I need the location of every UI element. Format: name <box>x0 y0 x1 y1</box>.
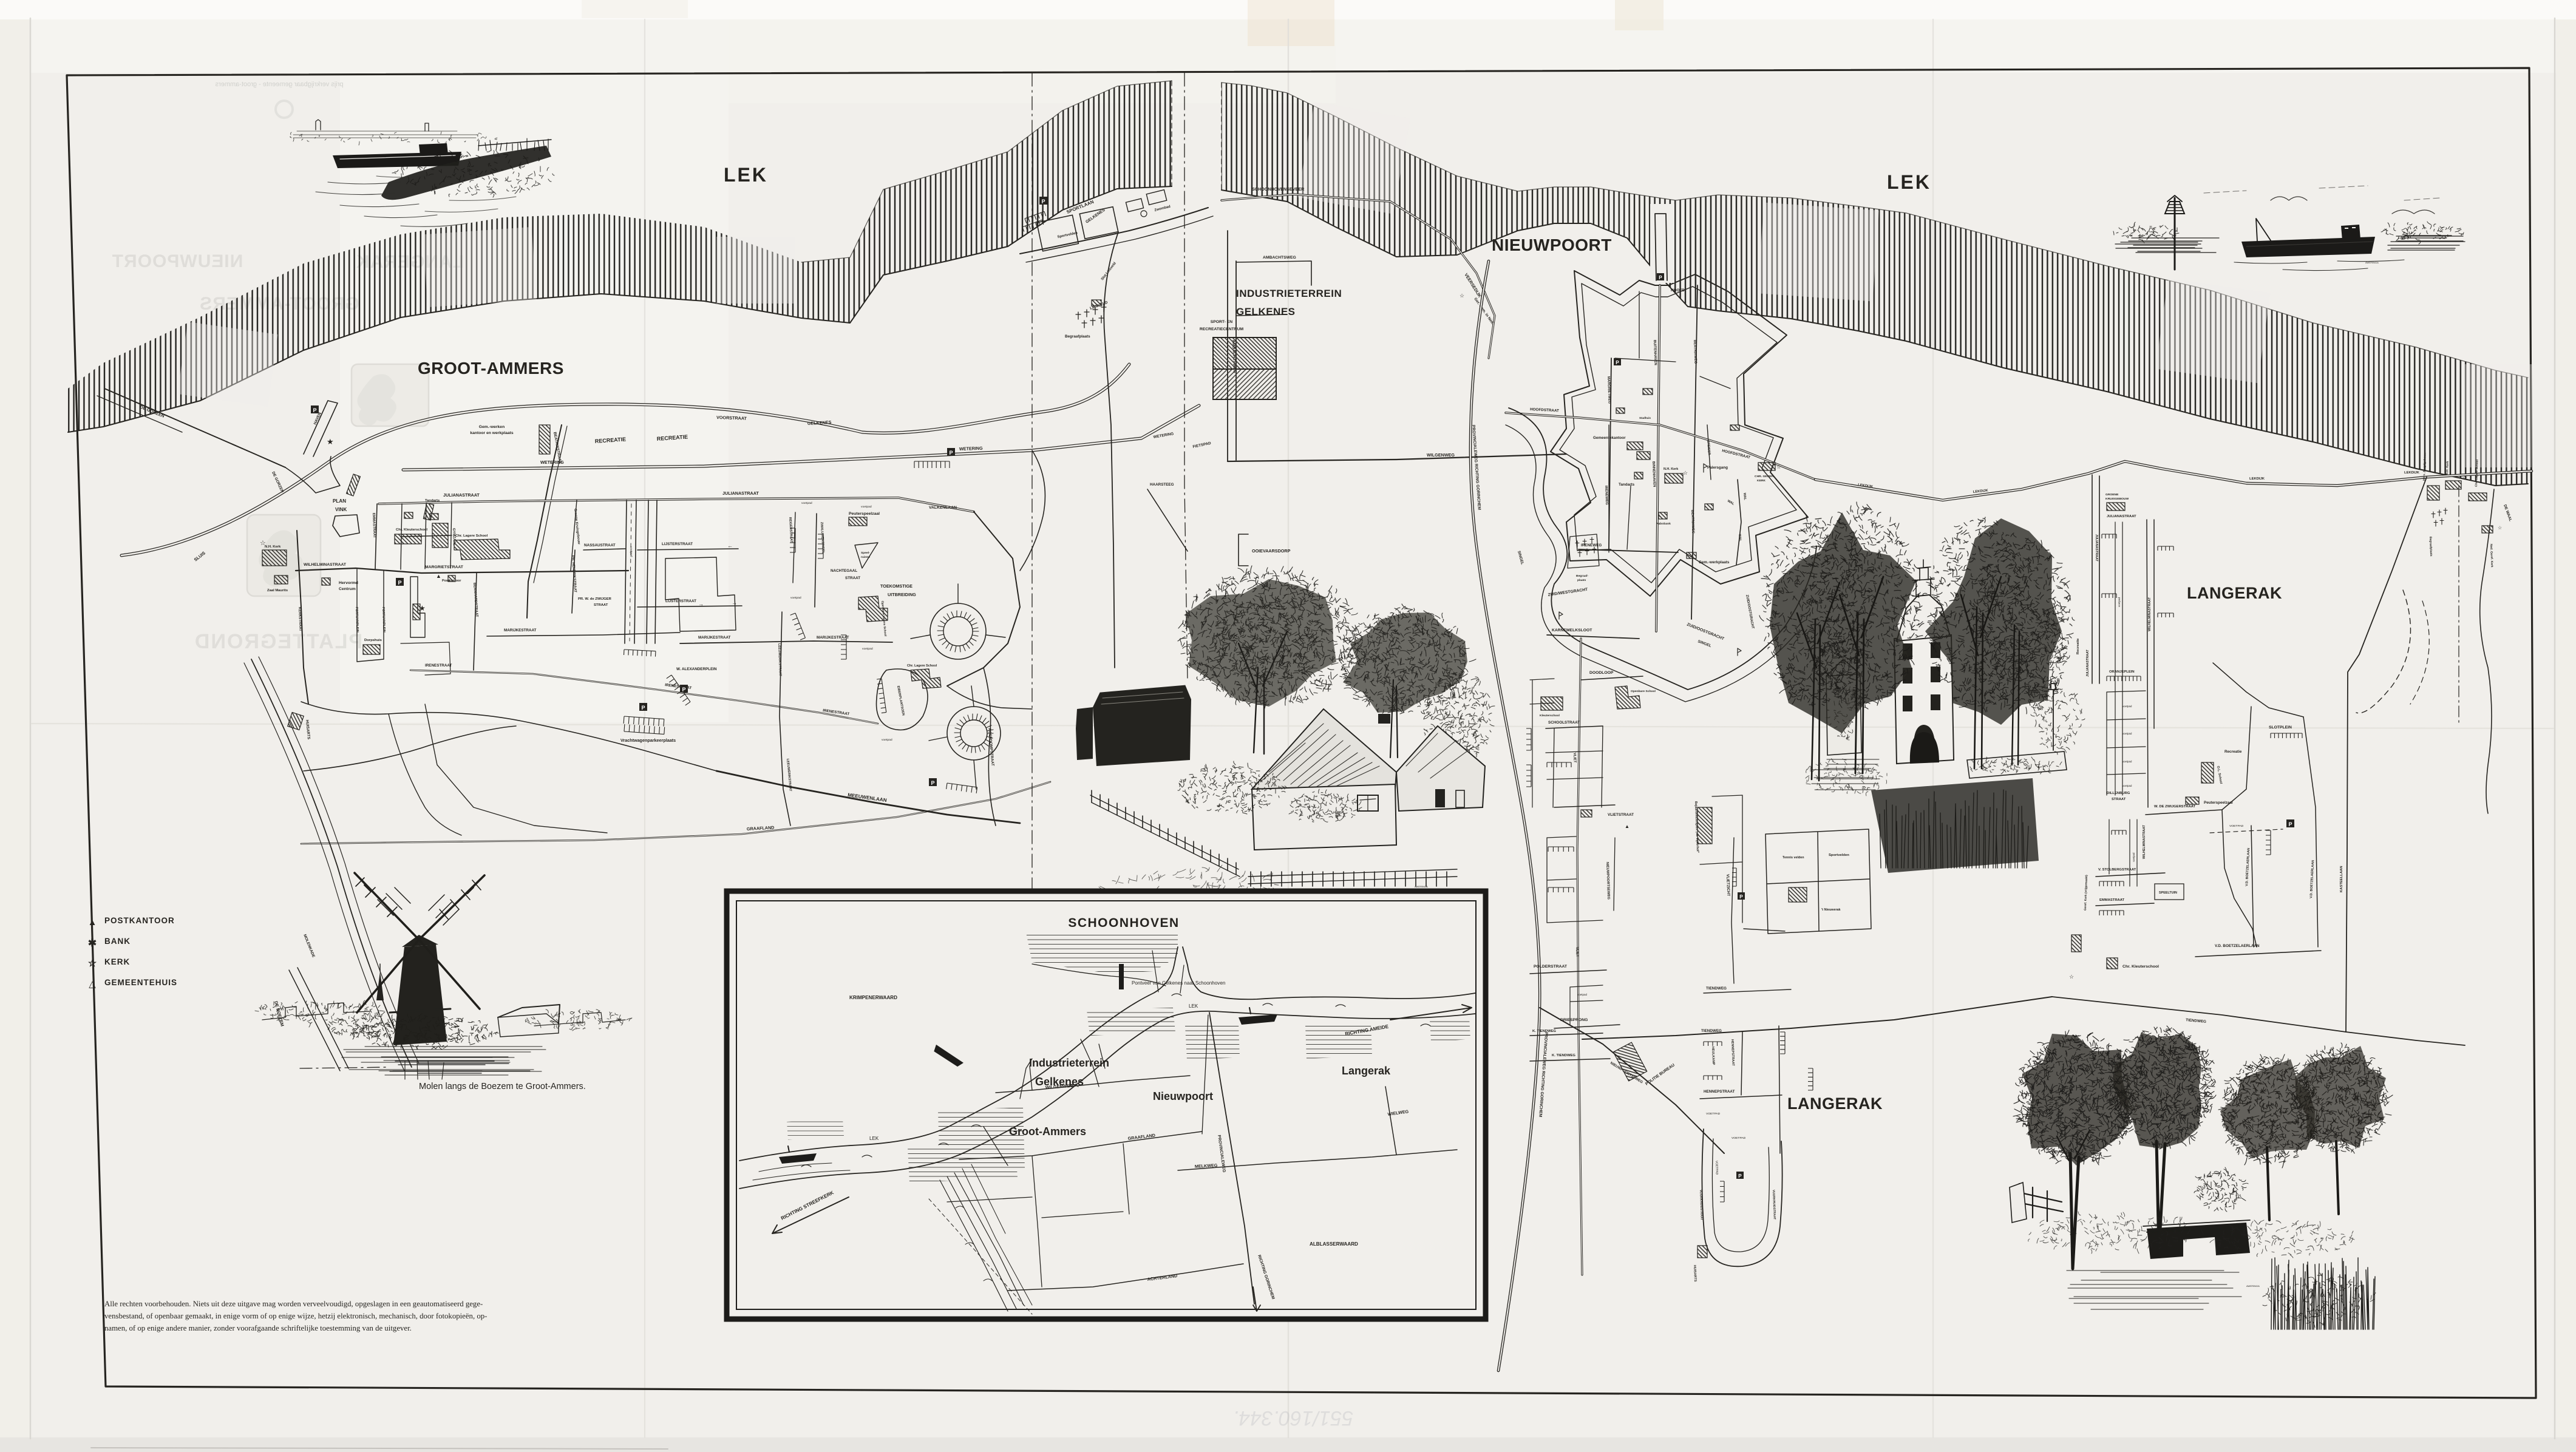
svg-text:Industrieterrein: Industrieterrein <box>1029 1057 1109 1069</box>
svg-text:voetpad: voetpad <box>2122 784 2132 787</box>
svg-text:MARIJKESTRAAT: MARIJKESTRAAT <box>504 628 537 633</box>
svg-text:LEK: LEK <box>1189 1003 1198 1009</box>
svg-text:←: ← <box>727 543 733 549</box>
svg-text:NASSAUSTRAAT: NASSAUSTRAAT <box>584 543 616 548</box>
svg-text:IRENEWEG: IRENEWEG <box>1581 543 1602 548</box>
svg-text:'t Nieuwerak: 't Nieuwerak <box>1821 908 1841 912</box>
svg-text:AWERINGA: AWERINGA <box>2365 261 2379 264</box>
svg-text:KERK: KERK <box>1757 479 1765 483</box>
svg-text:AWERINGA: AWERINGA <box>2246 1284 2260 1287</box>
svg-text:STRAAT: STRAAT <box>845 576 860 580</box>
svg-text:MARIJKESTRAAT: MARIJKESTRAAT <box>698 636 731 640</box>
svg-text:HEULKAMP: HEULKAMP <box>1711 1047 1715 1065</box>
svg-text:NIEUWPOORT: NIEUWPOORT <box>1492 236 1612 254</box>
svg-text:Gemeentekantoor: Gemeentekantoor <box>1593 436 1626 440</box>
svg-text:VINK: VINK <box>335 507 347 512</box>
svg-text:W. DE ZWIJGERSTRAAT: W. DE ZWIJGERSTRAAT <box>2154 805 2195 809</box>
svg-text:Gem.-werkplaats: Gem.-werkplaats <box>1699 560 1730 565</box>
svg-text:P: P <box>1616 360 1619 365</box>
svg-text:☆: ☆ <box>1683 470 1688 476</box>
svg-text:INDUSTRIETERREIN: INDUSTRIETERREIN <box>1236 288 1342 299</box>
svg-text:MARGRIETSTRAAT: MARGRIETSTRAAT <box>425 565 464 569</box>
svg-text:UITBREIDING: UITBREIDING <box>888 592 916 597</box>
svg-text:N.H. Kerk: N.H. Kerk <box>1664 467 1678 471</box>
svg-text:LANGERAK: LANGERAK <box>1787 1094 1883 1113</box>
svg-text:ruimte: ruimte <box>861 555 870 559</box>
svg-text:VLIET: VLIET <box>1575 947 1579 957</box>
svg-text:LEK: LEK <box>869 1136 879 1141</box>
svg-text:STRAAT: STRAAT <box>2112 798 2126 801</box>
svg-text:Dorpshuis: Dorpshuis <box>364 639 382 642</box>
svg-text:DOODLOOP: DOODLOOP <box>1589 671 1614 675</box>
svg-text:Chr. Lagere School: Chr. Lagere School <box>455 534 488 538</box>
svg-text:WAL: WAL <box>1742 493 1747 501</box>
svg-text:P: P <box>1739 894 1743 900</box>
svg-text:Gem.-werken: Gem.-werken <box>479 425 505 429</box>
svg-text:V. STOLBERGSTRAAT: V. STOLBERGSTRAAT <box>2098 868 2136 872</box>
svg-text:voetpad: voetpad <box>2118 597 2121 607</box>
svg-text:BANK: BANK <box>104 937 131 946</box>
svg-text:SCHOONHOVEN: SCHOONHOVEN <box>1068 916 1179 930</box>
svg-text:△: △ <box>89 979 96 989</box>
svg-text:AMBACHTSWEG: AMBACHTSWEG <box>1263 256 1296 260</box>
svg-text:voetpad: voetpad <box>790 596 801 600</box>
svg-text:GROOT-AMMERS: GROOT-AMMERS <box>418 359 564 378</box>
svg-text:☆: ☆ <box>2069 974 2074 980</box>
svg-text:plaats: plaats <box>1577 578 1586 582</box>
svg-text:Recreatie: Recreatie <box>2076 638 2080 654</box>
svg-text:OOIEVAARSDORP: OOIEVAARSDORP <box>1252 548 1291 554</box>
svg-text:SPEELTUIN: SPEELTUIN <box>2159 891 2177 895</box>
svg-text:voetpad: voetpad <box>2122 705 2132 708</box>
svg-text:IRENESTRAAT: IRENESTRAAT <box>425 663 452 668</box>
svg-text:Groot-Ammers: Groot-Ammers <box>1009 1125 1086 1138</box>
svg-text:→: → <box>732 600 737 606</box>
svg-text:LEK: LEK <box>724 164 768 186</box>
svg-text:voetpad: voetpad <box>1577 993 1588 996</box>
svg-text:HUISARTS: HUISARTS <box>1693 1265 1697 1282</box>
svg-text:HENNEPSTRAAT: HENNEPSTRAAT <box>1704 1090 1735 1094</box>
svg-text:Palersgang: Palersgang <box>1707 466 1728 470</box>
svg-text:VALKENLAAN: VALKENLAAN <box>929 506 957 510</box>
svg-text:Vrachtwagenparkeerplaats: Vrachtwagenparkeerplaats <box>620 738 676 743</box>
svg-text:KASTEELLAAN: KASTEELLAAN <box>2340 866 2343 892</box>
svg-text:voetpad: voetpad <box>801 501 812 505</box>
svg-text:Rabobank: Rabobank <box>1656 522 1671 526</box>
svg-text:SLOTPLEIN: SLOTPLEIN <box>2269 725 2292 730</box>
svg-text:VOETPAD: VOETPAD <box>1731 1136 1746 1140</box>
svg-text:Langerak: Langerak <box>1342 1065 1391 1077</box>
svg-text:W. ALEXANDERPLEIN: W. ALEXANDERPLEIN <box>676 667 717 671</box>
svg-text:P: P <box>2288 821 2292 827</box>
svg-text:Centrum: Centrum <box>339 587 356 591</box>
svg-text:Speel-: Speel- <box>861 551 870 555</box>
svg-text:▲: ▲ <box>88 917 97 928</box>
svg-text:LANGERAK: LANGERAK <box>2187 584 2282 602</box>
svg-text:WILHELMINASTRAAT: WILHELMINASTRAAT <box>304 563 347 567</box>
svg-text:☆: ☆ <box>1776 464 1781 470</box>
svg-text:→: → <box>698 601 704 607</box>
svg-text:Stadhuis: Stadhuis <box>1639 416 1651 419</box>
svg-text:PLATTEGROND: PLATTEGROND <box>194 630 362 653</box>
svg-text:P: P <box>931 780 934 786</box>
svg-text:GYMZAAL: GYMZAAL <box>452 528 456 546</box>
svg-text:N.H. Kerk: N.H. Kerk <box>265 545 281 549</box>
svg-text:DILLENBURG: DILLENBURG <box>2107 792 2130 795</box>
svg-text:★: ★ <box>327 437 334 446</box>
svg-text:LEK: LEK <box>1887 171 1931 193</box>
svg-text:IRENEWEG: IRENEWEG <box>1604 486 1608 505</box>
svg-text:Kleuterschool: Kleuterschool <box>1540 714 1560 718</box>
svg-text:TIENDWEG: TIENDWEG <box>1701 1029 1722 1033</box>
svg-text:JULIANASTRAAT: JULIANASTRAAT <box>2095 534 2098 562</box>
svg-text:JULIANASTRAAT: JULIANASTRAAT <box>443 492 480 498</box>
svg-text:CHR. GEREF.: CHR. GEREF. <box>1755 475 1774 478</box>
svg-text:K. TIENDWEG: K. TIENDWEG <box>1532 1030 1556 1033</box>
svg-text:▲: ▲ <box>1625 824 1630 829</box>
svg-text:VOETPAD: VOETPAD <box>1715 1161 1719 1175</box>
svg-text:Peuterspeelzaal: Peuterspeelzaal <box>849 512 880 516</box>
svg-text:VOETPAD: VOETPAD <box>2229 824 2244 828</box>
svg-text:Tennis velden: Tennis velden <box>1782 856 1804 860</box>
svg-text:voetpad: voetpad <box>2122 760 2132 763</box>
svg-text:Chr. Lagere School: Chr. Lagere School <box>907 664 937 668</box>
svg-text:Alle rechten voorbehouden. Nie: Alle rechten voorbehouden. Niets uit dez… <box>104 1300 483 1308</box>
svg-text:RECREATIECENTRUM: RECREATIECENTRUM <box>1200 327 1244 331</box>
svg-text:P: P <box>1659 275 1662 280</box>
svg-text:voetpad: voetpad <box>882 738 892 742</box>
svg-text:HOOFD: HOOFD <box>1671 288 1685 293</box>
svg-text:vensbestand, of openbaar gemaa: vensbestand, of openbaar gemaakt, in eni… <box>104 1312 487 1320</box>
svg-text:P: P <box>1041 198 1045 205</box>
svg-text:AWERINGA: AWERINGA <box>1415 885 1428 888</box>
svg-text:TOEKOMSTIGE: TOEKOMSTIGE <box>880 583 912 589</box>
svg-text:JULIANASTRAAT: JULIANASTRAAT <box>722 490 759 496</box>
svg-text:P: P <box>949 450 953 456</box>
svg-text:551/160.344.: 551/160.344. <box>1233 1406 1354 1430</box>
svg-text:Openbare School: Openbare School <box>1631 690 1656 693</box>
svg-text:PR. W. de ZWIJGER: PR. W. de ZWIJGER <box>578 597 612 601</box>
svg-text:LEKDIJK: LEKDIJK <box>2404 471 2420 475</box>
svg-text:☆: ☆ <box>88 958 97 969</box>
svg-text:Begraaf-: Begraaf- <box>1576 574 1588 578</box>
svg-text:★: ★ <box>419 604 426 612</box>
svg-text:JULIANASTRAAT: JULIANASTRAAT <box>2107 515 2136 518</box>
svg-text:☆: ☆ <box>1460 293 1464 299</box>
svg-text:Hervormd: Hervormd <box>339 581 358 585</box>
svg-text:KRUISGEBOUW: KRUISGEBOUW <box>2105 497 2129 501</box>
svg-text:NACHTEGAAL: NACHTEGAAL <box>831 569 857 573</box>
svg-text:WILHELMINASTRAAT: WILHELMINASTRAAT <box>2148 597 2152 631</box>
svg-text:HAARSTEEG: HAARSTEEG <box>1150 483 1174 487</box>
svg-text:voetpad: voetpad <box>629 546 633 557</box>
svg-text:Begraafplaats: Begraafplaats <box>1065 334 1090 339</box>
svg-text:LIJSTERSTRAAT: LIJSTERSTRAAT <box>662 542 693 546</box>
svg-text:KARNEMELKSLOOT: KARNEMELKSLOOT <box>1552 628 1592 633</box>
svg-text:STRAAT: STRAAT <box>594 603 608 607</box>
svg-text:SPORT- EN: SPORT- EN <box>1211 320 1233 324</box>
svg-text:P: P <box>1738 1173 1742 1179</box>
svg-text:V.D. BOETZELAERLAAN: V.D. BOETZELAERLAAN <box>2215 944 2260 948</box>
svg-text:ORANJEPLEIN: ORANJEPLEIN <box>2109 670 2135 674</box>
svg-text:WETERING: WETERING <box>959 446 983 452</box>
svg-text:voetpad: voetpad <box>2122 732 2132 735</box>
svg-text:Chr. Kleuterschool: Chr. Kleuterschool <box>2122 965 2159 969</box>
svg-text:☆: ☆ <box>260 540 266 547</box>
svg-text:▲: ▲ <box>436 573 441 579</box>
svg-text:ALBLASSERWAARD: ALBLASSERWAARD <box>1310 1241 1358 1247</box>
svg-text:voetpad: voetpad <box>861 505 872 509</box>
svg-text:P: P <box>313 407 316 413</box>
svg-text:KERK: KERK <box>104 957 130 966</box>
svg-text:TIENDWEG: TIENDWEG <box>1706 986 1727 991</box>
svg-text:EMMASTRAAT: EMMASTRAAT <box>2099 898 2125 902</box>
svg-text:Begraafplaats: Begraafplaats <box>2428 537 2433 557</box>
svg-text:WILHELMINASTRAAT: WILHELMINASTRAAT <box>2143 824 2146 859</box>
svg-text:WILGENWEG: WILGENWEG <box>1427 452 1455 458</box>
svg-text:Sportvelden: Sportvelden <box>1829 853 1849 857</box>
svg-text:Pontveer van Gelkenes naar Sch: Pontveer van Gelkenes naar Schoonhoven <box>1132 980 1225 986</box>
svg-text:prijs verkrijgbaar gemeente -: prijs verkrijgbaar gemeente - groot-amme… <box>215 81 343 88</box>
svg-text:☆: ☆ <box>2498 525 2502 531</box>
svg-text:K. TIENDWEG: K. TIENDWEG <box>1552 1054 1575 1057</box>
svg-text:WAL: WAL <box>1738 534 1742 542</box>
svg-text:LIJSTERSTRAAT: LIJSTERSTRAAT <box>665 599 696 603</box>
svg-text:VOETPAD: VOETPAD <box>1706 1112 1721 1116</box>
svg-text:MARIJKESTRAAT: MARIJKESTRAAT <box>817 636 849 640</box>
svg-text:Zaal Maurits: Zaal Maurits <box>267 589 288 592</box>
svg-text:KRIMPENERWAARD: KRIMPENERWAARD <box>849 995 897 1000</box>
svg-text:Tandarts: Tandarts <box>1619 483 1635 487</box>
svg-text:POSTKANTOOR: POSTKANTOOR <box>104 916 175 925</box>
svg-text:VLIETSTRAAT: VLIETSTRAAT <box>1608 813 1634 817</box>
svg-text:kantoor en werkplaats: kantoor en werkplaats <box>470 431 514 435</box>
svg-text:VLIETZICHT: VLIETZICHT <box>1725 874 1730 897</box>
svg-text:SCHOOLSTRAAT: SCHOOLSTRAAT <box>1548 721 1580 725</box>
svg-text:✱: ✱ <box>88 937 97 949</box>
svg-text:POLDERSTRAAT: POLDERSTRAAT <box>1534 965 1568 969</box>
svg-text:Chr. Kleuterschool: Chr. Kleuterschool <box>396 528 427 532</box>
svg-text:Recreatie: Recreatie <box>2224 750 2242 754</box>
svg-text:VOORSTRAAT: VOORSTRAAT <box>716 415 747 421</box>
svg-text:voetpad: voetpad <box>862 647 873 651</box>
svg-text:N.H. Kerk: N.H. Kerk <box>2445 461 2450 475</box>
svg-text:NIEUWPOORT: NIEUWPOORT <box>112 251 243 271</box>
svg-text:JULIANASTRAAT: JULIANASTRAAT <box>2086 649 2090 677</box>
svg-text:GEMEENTEHUIS: GEMEENTEHUIS <box>104 978 177 987</box>
svg-text:SCHOONHOVENSEVEER: SCHOONHOVENSEVEER <box>1252 186 1305 192</box>
svg-text:LEKDIJK: LEKDIJK <box>2249 477 2265 481</box>
svg-text:voetpad: voetpad <box>2132 852 2135 862</box>
svg-text:GROENE: GROENE <box>2105 493 2119 497</box>
svg-text:Tandarts: Tandarts <box>425 499 440 503</box>
svg-text:P: P <box>398 580 401 586</box>
svg-text:☆: ☆ <box>2462 475 2467 481</box>
svg-text:PLAN: PLAN <box>333 498 346 504</box>
svg-text:P: P <box>641 705 645 711</box>
svg-text:P: P <box>682 687 685 693</box>
svg-text:Molen langs de Boezem te Groot: Molen langs de Boezem te Groot-Ammers. <box>419 1082 586 1091</box>
svg-text:namen, of op enige andere mani: namen, of op enige andere manier, zonder… <box>104 1324 412 1332</box>
svg-text:VLIET: VLIET <box>1572 753 1577 763</box>
